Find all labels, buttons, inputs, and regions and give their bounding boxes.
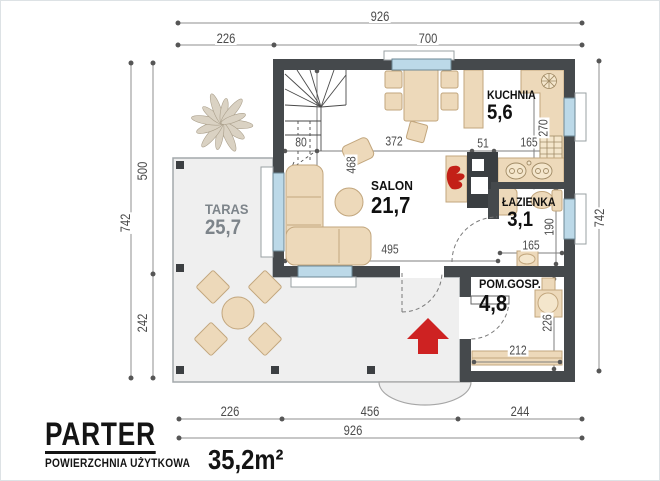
floor-plan-canvas: 926 226 700 742 500 242 742 226 456 244 … (0, 0, 660, 481)
dim-salon-w: 495 (380, 243, 401, 256)
room-name: SALON (371, 179, 413, 193)
dim-left-seg1: 500 (135, 160, 149, 182)
window-salon-south (298, 266, 352, 277)
dim-util-d: 226 (541, 313, 554, 334)
dim-bath-w: 165 (521, 239, 542, 252)
dim-pass: 51 (476, 137, 491, 150)
dining-table (404, 68, 438, 121)
window-frame-bath (575, 194, 586, 244)
dim-stairs: 80 (294, 136, 309, 149)
dim-top-seg2: 700 (417, 31, 439, 45)
utility-door-opening (459, 297, 472, 339)
entry-door-opening (400, 265, 444, 278)
stairs (285, 70, 346, 169)
bath-sink (519, 254, 535, 264)
room-label-salon: SALON 21,7 (371, 179, 417, 217)
room-label-lazienka: ŁAZIENKA 3,1 (502, 197, 560, 231)
sofa-bottom-section (286, 227, 371, 265)
kitchen-cabinet (464, 70, 483, 128)
room-area: 5,6 (487, 102, 534, 124)
dim-top-total: 926 (369, 9, 391, 23)
floor-plan-drawing (1, 1, 660, 481)
page-title: PARTER (45, 418, 156, 454)
window-frame-salon-south (291, 277, 356, 287)
dim-bottom-seg3: 244 (509, 404, 531, 418)
room-label-kuchnia: KUCHNIA 5,6 (487, 90, 540, 124)
stove-grid (540, 136, 562, 160)
window-frame-kitchen (575, 93, 586, 141)
terrace-table (222, 297, 254, 329)
dim-left-seg2: 242 (135, 312, 149, 334)
bath-door-arc (452, 217, 497, 262)
dim-salon-d: 468 (345, 155, 358, 176)
dim-right-total: 742 (592, 207, 606, 229)
room-label-taras: TARAS 25,7 (205, 202, 252, 239)
window-kitchen (564, 98, 575, 136)
room-area: 4,8 (479, 291, 538, 315)
window-terrace (273, 173, 284, 251)
window-top (392, 59, 451, 70)
room-name: TARAS (205, 202, 248, 217)
window-frame-left (261, 167, 273, 257)
dim-util-w: 212 (508, 344, 529, 357)
dim-left-total: 742 (118, 212, 132, 234)
coffee-table (335, 188, 363, 216)
page-subtitle: POWIERZCHNIA UŻYTKOWA (45, 458, 190, 470)
plant-decoration (191, 93, 253, 153)
entrance-porch (379, 382, 471, 405)
kitchen-sink-icon (541, 73, 557, 89)
dim-salon-top: 372 (384, 135, 405, 148)
dim-top-seg1: 226 (215, 31, 237, 45)
room-label-pomgosp: POM.GOSP. 4,8 (479, 278, 546, 315)
dim-bottom-seg1: 226 (219, 404, 241, 418)
dining-set (385, 68, 458, 143)
dim-bottom-total: 926 (342, 423, 364, 437)
salon-furniture (286, 136, 375, 265)
room-area: 21,7 (371, 193, 411, 217)
window-bath (564, 199, 575, 239)
room-area: 25,7 (205, 217, 247, 239)
total-area-value: 35,2m² (208, 444, 283, 476)
dim-bottom-seg2: 456 (359, 404, 381, 418)
room-area: 3,1 (502, 209, 553, 231)
